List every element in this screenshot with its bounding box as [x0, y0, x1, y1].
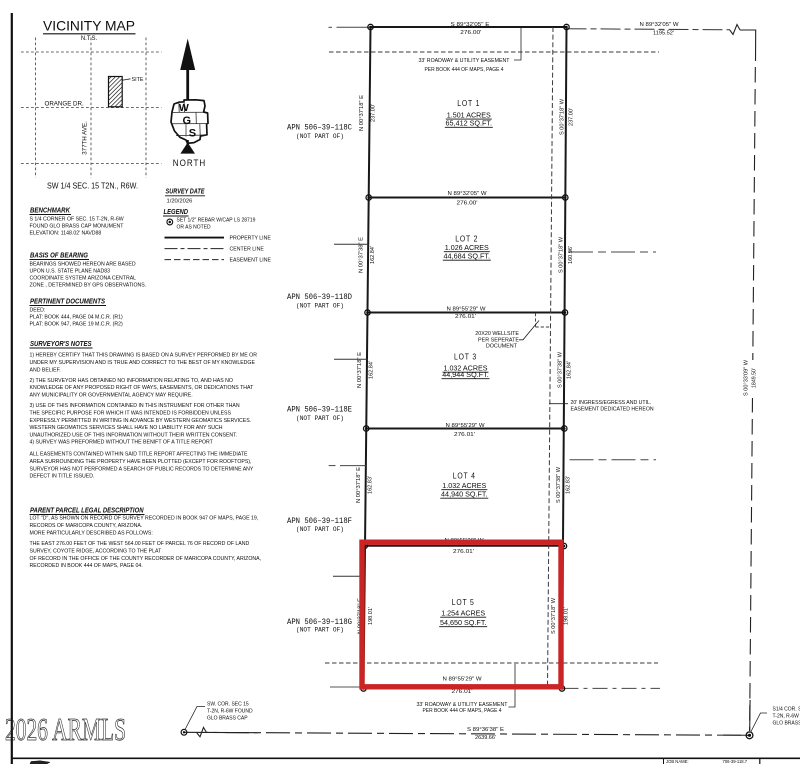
- svg-text:PLAT: BOOK 947, PAGE 19 M.C.R.: PLAT: BOOK 947, PAGE 19 M.C.R. (R2): [30, 322, 123, 328]
- svg-text:SET 1/2" REBAR W/CAP LS 28719: SET 1/2" REBAR W/CAP LS 28719: [177, 217, 256, 223]
- svg-text:BEARINGS SHOWED HEREON ARE BAS: BEARINGS SHOWED HEREON ARE BASED: [30, 262, 136, 268]
- svg-text:VICINITY MAP: VICINITY MAP: [43, 18, 135, 34]
- svg-text:S 00°37'18" W: S 00°37'18" W: [551, 598, 557, 634]
- svg-text:APN 506–39–118E: APN 506–39–118E: [287, 407, 352, 415]
- svg-text:DEED:: DEED:: [30, 308, 46, 314]
- svg-text:706-39-118.7: 706-39-118.7: [723, 759, 748, 764]
- svg-text:THE EAST 276.00 FEET OF THE WE: THE EAST 276.00 FEET OF THE WEST 564.00 …: [30, 541, 250, 547]
- svg-text:ANY MUNICIPALITY OR GOVERNMENT: ANY MUNICIPALITY OR GOVERNMENTAL AGENCY …: [30, 393, 193, 399]
- svg-text:ELEVATION: 1148.02' NAVD88: ELEVATION: 1148.02' NAVD88: [30, 231, 102, 237]
- svg-text:PARENT PARCEL LEGAL DESCRIPTIO: PARENT PARCEL LEGAL DESCRIPTION: [30, 506, 144, 515]
- svg-text:S1/4 COR. SEC 15: S1/4 COR. SEC 15: [773, 707, 800, 713]
- svg-text:237.00': 237.00': [371, 104, 377, 122]
- svg-text:44,684 SQ.FT.: 44,684 SQ.FT.: [444, 252, 491, 261]
- svg-text:1195.52': 1195.52': [653, 31, 674, 37]
- svg-text:APN 506–39–118C: APN 506–39–118C: [287, 125, 352, 133]
- svg-text:N 00°37'18" E: N 00°37'18" E: [356, 466, 362, 503]
- svg-text:237.00': 237.00': [569, 108, 575, 126]
- svg-text:OF RECORD IN THE OFFICE OF THE: OF RECORD IN THE OFFICE OF THE COUNTY RE…: [30, 556, 262, 562]
- svg-text:N 89°55'29" W: N 89°55'29" W: [447, 307, 487, 313]
- svg-text:N 00°37'18" E: N 00°37'18" E: [357, 351, 363, 388]
- svg-text:N.T.S.: N.T.S.: [81, 36, 98, 42]
- svg-text:(NOT PART OF): (NOT PART OF): [296, 133, 344, 140]
- svg-text:276.01': 276.01': [455, 314, 476, 320]
- svg-text:S 00°37'38" W: S 00°37'38" W: [557, 352, 563, 388]
- svg-text:162.84': 162.84': [567, 361, 573, 379]
- svg-text:OR AS NOTED: OR AS NOTED: [177, 224, 212, 230]
- svg-text:APN 506–39–118D: APN 506–39–118D: [287, 294, 352, 302]
- svg-text:1849.50': 1849.50': [752, 368, 758, 388]
- svg-text:LOT 4: LOT 4: [453, 472, 476, 481]
- svg-text:377TH AVE.: 377TH AVE.: [82, 121, 89, 155]
- svg-text:2639.66': 2639.66': [475, 735, 496, 741]
- svg-text:PROPERTY LINE: PROPERTY LINE: [230, 236, 272, 242]
- svg-text:33' ROADWAY & UTILITY EASEMENT: 33' ROADWAY & UTILITY EASEMENT: [417, 702, 509, 708]
- svg-text:(NOT PART OF): (NOT PART OF): [296, 526, 344, 533]
- svg-text:4) SURVEY WAS PREFORMED WITHOU: 4) SURVEY WAS PREFORMED WITHOUT THE BENI…: [30, 440, 214, 446]
- svg-text:SITE: SITE: [132, 77, 144, 83]
- svg-text:(NOT PART OF): (NOT PART OF): [296, 303, 344, 310]
- svg-text:PER BOOK 444 OF MAPS, PAGE 4: PER BOOK 444 OF MAPS, PAGE 4: [423, 708, 502, 714]
- svg-text:LOT 3: LOT 3: [454, 353, 477, 362]
- svg-text:AND BELIEF.: AND BELIEF.: [30, 368, 61, 374]
- svg-text:ALL EASEMENTS CONTAINED WITHIN: ALL EASEMENTS CONTAINED WITHIN SAID TITL…: [30, 452, 249, 458]
- svg-text:33' ROADWAY & UTILITY EASEMENT: 33' ROADWAY & UTILITY EASEMENT: [419, 58, 511, 64]
- svg-text:SW 1/4 SEC. 15 T2N., R6W.: SW 1/4 SEC. 15 T2N., R6W.: [47, 181, 138, 190]
- svg-text:44,944 SQ.FT.: 44,944 SQ.FT.: [442, 370, 489, 379]
- svg-text:162.84': 162.84': [369, 361, 375, 379]
- svg-text:276.01': 276.01': [453, 549, 474, 555]
- svg-text:LEGEND: LEGEND: [164, 207, 189, 216]
- svg-text:LOT "D", AS SHOWN ON RECORD OF: LOT "D", AS SHOWN ON RECORD OF SURVEY RE…: [30, 516, 259, 522]
- svg-text:160.96': 160.96': [568, 246, 574, 264]
- svg-text:PERTINENT DOCUMENTS: PERTINENT DOCUMENTS: [30, 297, 105, 306]
- svg-text:N 00°37'18" E: N 00°37'18" E: [359, 94, 365, 131]
- svg-text:276.01': 276.01': [454, 432, 475, 438]
- svg-text:1/20/2026: 1/20/2026: [167, 198, 193, 204]
- svg-text:T-2N, R-6W FOUND: T-2N, R-6W FOUND: [207, 709, 253, 715]
- svg-text:EASEMENT LINE: EASEMENT LINE: [230, 258, 272, 264]
- svg-text:S 1/4 CORNER OF SEC. 15 T-2N,: S 1/4 CORNER OF SEC. 15 T-2N, R-6W: [30, 217, 124, 223]
- svg-text:S: S: [189, 128, 196, 140]
- svg-text:RECORDED IN BOOK 444 OF MAPS,: RECORDED IN BOOK 444 OF MAPS, PAGE 04.: [30, 563, 143, 569]
- svg-text:20' INGRESS/EGRESS AND UTIL.: 20' INGRESS/EGRESS AND UTIL.: [571, 400, 652, 406]
- svg-text:APN 506–39–118F: APN 506–39–118F: [287, 518, 352, 526]
- svg-text:LOT 5: LOT 5: [452, 598, 475, 607]
- svg-text:UPON U.S. STATE PLANE NAD83: UPON U.S. STATE PLANE NAD83: [30, 269, 111, 275]
- svg-text:198.01': 198.01': [564, 607, 570, 625]
- svg-text:65,412 SQ.FT.: 65,412 SQ.FT.: [446, 119, 493, 128]
- svg-text:PER BOOK 444 OF MAPS, PAGE 4: PER BOOK 444 OF MAPS, PAGE 4: [425, 67, 504, 73]
- svg-text:20X20 WELLSITE: 20X20 WELLSITE: [475, 331, 519, 337]
- svg-text:BASIS OF BEARING: BASIS OF BEARING: [30, 251, 88, 260]
- svg-text:BENCHMARK: BENCHMARK: [30, 206, 71, 215]
- svg-text:N 89°32'05" W: N 89°32'05" W: [448, 191, 488, 197]
- svg-text:S 00°37'38" W: S 00°37'38" W: [556, 467, 562, 503]
- svg-text:ZONE , DETERMINED BY GPS OBSER: ZONE , DETERMINED BY GPS OBSERVATIONS.: [30, 283, 147, 289]
- svg-text:NORTH: NORTH: [173, 158, 207, 169]
- svg-text:S 00°37'18" W: S 00°37'18" W: [559, 237, 565, 273]
- svg-text:SURVEY DATE: SURVEY DATE: [166, 187, 205, 196]
- svg-text:WESTERN GEOMATICS SERVICES SHA: WESTERN GEOMATICS SERVICES SHALL HAVE NO…: [30, 425, 223, 431]
- svg-text:276.00': 276.00': [457, 201, 478, 207]
- svg-text:ORANGE DR.: ORANGE DR.: [45, 101, 84, 108]
- svg-text:AREA SURROUNDING THE PROPERTY: AREA SURROUNDING THE PROPERTY HAVE BEEN …: [30, 459, 252, 465]
- svg-text:N 89°55'29" W: N 89°55'29" W: [443, 677, 483, 683]
- svg-text:2026 ARMLS: 2026 ARMLS: [5, 711, 126, 747]
- svg-text:CENTER LINE: CENTER LINE: [230, 247, 265, 253]
- svg-text:EXPRESSLY PERMITTED IN WRITING: EXPRESSLY PERMITTED IN WRITING IN ADVANC…: [30, 418, 252, 424]
- svg-text:44,940 SQ.FT.: 44,940 SQ.FT.: [441, 490, 488, 499]
- svg-text:S 00°33'09" W: S 00°33'09" W: [743, 360, 749, 396]
- svg-text:54,650 SQ.FT.: 54,650 SQ.FT.: [440, 618, 487, 627]
- svg-text:SURVEY, COYOTE RIDGE, ACCORDIN: SURVEY, COYOTE RIDGE, ACCORDING TO THE P…: [30, 549, 163, 555]
- svg-text:S 89°32'05" E: S 89°32'05" E: [451, 22, 490, 28]
- svg-text:SURVEYOR HAS NOT PERFORMED A S: SURVEYOR HAS NOT PERFORMED A SEARCH OF P…: [30, 466, 254, 472]
- svg-text:198.01': 198.01': [368, 607, 374, 625]
- svg-text:276.00': 276.00': [460, 30, 481, 36]
- svg-text:PLAT: BOOK 444, PAGE 04 M.C.R.: PLAT: BOOK 444, PAGE 04 M.C.R. (R1): [30, 315, 123, 321]
- svg-text:(NOT PART OF): (NOT PART OF): [296, 415, 344, 422]
- svg-text:162.83': 162.83': [367, 476, 373, 494]
- svg-text:GLO BRASS CAP: GLO BRASS CAP: [207, 716, 248, 722]
- svg-text:DEFECT IN TITLE ISSUED.: DEFECT IN TITLE ISSUED.: [30, 474, 95, 480]
- svg-text:JOB NAME:: JOB NAME:: [666, 759, 689, 764]
- svg-text:FOUND GLO BRASS CAP MONUMENT: FOUND GLO BRASS CAP MONUMENT: [30, 224, 125, 230]
- svg-text:GLO BRASS CAP: GLO BRASS CAP: [773, 721, 800, 727]
- svg-text:162.83': 162.83': [565, 476, 571, 494]
- svg-text:276.01': 276.01': [452, 689, 473, 695]
- svg-text:1.254 ACRES: 1.254 ACRES: [441, 609, 485, 618]
- svg-text:UNAUTHORIZED USE OF THIS INFOR: UNAUTHORIZED USE OF THIS INFORMATION WIT…: [30, 433, 238, 439]
- svg-text:S 89°36'38" E: S 89°36'38" E: [467, 727, 504, 733]
- svg-text:N 89°32'05" W: N 89°32'05" W: [640, 22, 680, 28]
- svg-text:UNDER MY SUPERVISION AND IS TR: UNDER MY SUPERVISION AND IS TRUE AND COR…: [30, 360, 256, 366]
- svg-text:MORE PARTICULARLY DESCRIBED AS: MORE PARTICULARLY DESCRIBED AS FOLLOWS:: [30, 531, 153, 537]
- svg-text:SURVEYOR'S NOTES: SURVEYOR'S NOTES: [30, 339, 92, 348]
- svg-text:THE SPECIFIC PURPOSE FOR WHICH: THE SPECIFIC PURPOSE FOR WHICH IT WAS IN…: [30, 410, 232, 416]
- svg-text:(NOT PART OF): (NOT PART OF): [296, 627, 344, 634]
- svg-text:KNOWLEDGE OF ANY PROPOSED RIGH: KNOWLEDGE OF ANY PROPOSED RIGHT OF WAYS,…: [30, 385, 255, 391]
- svg-text:T-2N, R-6W FOUND: T-2N, R-6W FOUND: [773, 714, 800, 720]
- svg-text:G: G: [183, 115, 192, 127]
- svg-text:162.84': 162.84': [370, 246, 376, 264]
- svg-text:LOT 1: LOT 1: [457, 99, 480, 108]
- svg-text:2) THE SURVEYOR HAS OBTAINED N: 2) THE SURVEYOR HAS OBTAINED NO INFORMAT…: [30, 378, 233, 384]
- svg-text:N 89°55'29" W: N 89°55'29" W: [446, 423, 486, 429]
- svg-text:W: W: [179, 102, 189, 114]
- svg-text:RECORDS OF MARICOPA COUNTY, AR: RECORDS OF MARICOPA COUNTY, ARIZONA.: [30, 523, 143, 529]
- svg-text:SW. COR. SEC 15: SW. COR. SEC 15: [207, 702, 249, 708]
- svg-text:EASEMENT DEDICATED HEREON: EASEMENT DEDICATED HEREON: [571, 406, 654, 412]
- svg-text:3) USE OF THIS INFORMATION CON: 3) USE OF THIS INFORMATION CONTAINED IN …: [30, 403, 240, 409]
- svg-text:DOCUMENT: DOCUMENT: [486, 344, 518, 350]
- svg-text:1) HEREBY CERTIFY THAT THIS DR: 1) HEREBY CERTIFY THAT THIS DRAWING IS B…: [30, 353, 258, 359]
- svg-text:S 00°37'18" W: S 00°37'18" W: [559, 99, 565, 135]
- svg-text:N 00°37'38" E: N 00°37'38" E: [358, 236, 364, 273]
- svg-text:COORDINATE SYSTEM ARIZONA CENT: COORDINATE SYSTEM ARIZONA CENTRAL: [30, 276, 137, 282]
- svg-text:PER SEPERATE: PER SEPERATE: [478, 337, 519, 343]
